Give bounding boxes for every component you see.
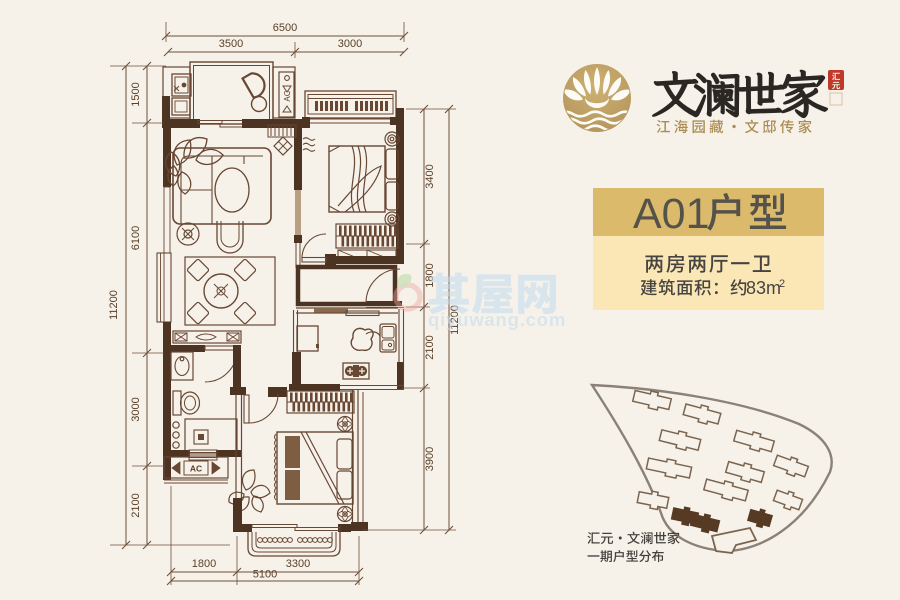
svg-text:qiyuwang.com: qiyuwang.com	[428, 309, 566, 330]
svg-text:A01: A01	[633, 190, 710, 238]
svg-text:11200: 11200	[108, 290, 120, 320]
svg-text:3400: 3400	[424, 164, 436, 188]
svg-text:3000: 3000	[130, 397, 142, 421]
svg-text:AC: AC	[283, 90, 292, 101]
svg-text:1800: 1800	[424, 263, 436, 287]
svg-text:6100: 6100	[130, 226, 142, 250]
svg-text:5100: 5100	[253, 569, 277, 581]
svg-text:AC: AC	[190, 464, 202, 474]
svg-text:2100: 2100	[130, 493, 142, 517]
svg-text:6500: 6500	[273, 22, 297, 34]
svg-text:1500: 1500	[130, 82, 142, 106]
svg-text:3500: 3500	[219, 38, 243, 50]
svg-text:1800: 1800	[192, 558, 216, 570]
svg-text:3000: 3000	[338, 38, 362, 50]
svg-text:3900: 3900	[424, 447, 436, 471]
svg-text:2: 2	[779, 278, 785, 290]
svg-text:83m: 83m	[746, 278, 781, 298]
svg-text:2100: 2100	[424, 335, 436, 359]
svg-text:3300: 3300	[286, 558, 310, 570]
